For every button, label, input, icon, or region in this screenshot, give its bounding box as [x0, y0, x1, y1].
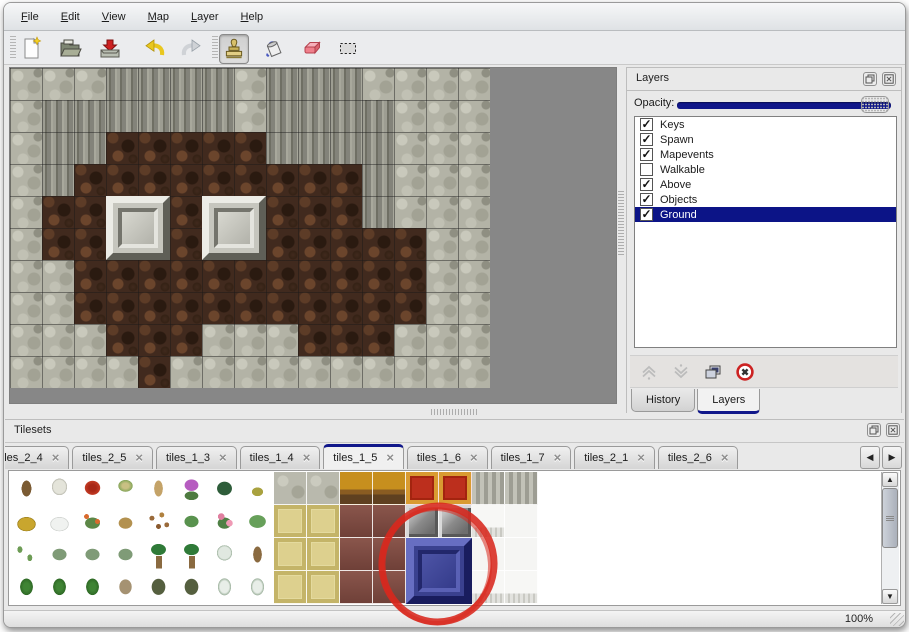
map-tile [170, 68, 202, 100]
map-tile [234, 324, 266, 356]
stone-block-face [214, 208, 254, 248]
layers-panel: Layers Opacity: ✓Keys✓Spawn✓MapeventsWal… [626, 67, 902, 413]
tileset-tile-hay[interactable] [10, 505, 43, 538]
map-tile [362, 324, 394, 356]
map-tile [266, 228, 298, 260]
map-tile [74, 228, 106, 260]
layer-name: Walkable [660, 164, 705, 176]
map-tile [170, 356, 202, 388]
tileset-tab-label: tiles_2_1 [584, 452, 628, 464]
tileset-tile-conifer[interactable] [76, 571, 109, 604]
map-tile [394, 228, 426, 260]
close-panel-button[interactable] [886, 423, 900, 437]
tileset-tile-mat[interactable] [274, 505, 307, 538]
map-tile [458, 228, 490, 260]
layer-visibility-checkbox[interactable]: ✓ [640, 148, 653, 161]
map-tile [42, 164, 74, 196]
map-tile [42, 324, 74, 356]
map-tile [362, 132, 394, 164]
map-tile [458, 260, 490, 292]
map-tile [10, 260, 42, 292]
map-tile [394, 196, 426, 228]
vertical-splitter-handle[interactable] [618, 191, 624, 255]
map-tile [426, 196, 458, 228]
map-tile [170, 292, 202, 324]
save-file-button[interactable] [96, 34, 124, 62]
tileset-tile-palm[interactable] [142, 538, 175, 571]
map-tile [170, 132, 202, 164]
map-tile [394, 68, 426, 100]
tileset-tile-grass[interactable] [241, 472, 274, 505]
map-tile [74, 292, 106, 324]
checkmark-icon: ✓ [641, 209, 651, 219]
opacity-row: Opacity: [627, 91, 901, 115]
undo-button[interactable] [140, 34, 168, 62]
map-canvas[interactable] [10, 68, 490, 388]
map-tile [394, 356, 426, 388]
map-tile [298, 132, 330, 164]
map-tile [74, 356, 106, 388]
layer-row-ground[interactable]: ✓Ground [635, 207, 896, 222]
map-tile [362, 260, 394, 292]
map-tile [106, 164, 138, 196]
layer-visibility-checkbox[interactable]: ✓ [640, 178, 653, 191]
map-tile [362, 292, 394, 324]
tileset-tile-mat[interactable] [307, 505, 340, 538]
tileset-tile-conifer[interactable] [43, 571, 76, 604]
scroll-down-button[interactable]: ▼ [882, 589, 898, 604]
map-tile [74, 196, 106, 228]
layer-name: Spawn [660, 134, 694, 146]
tileset-tile-conifer[interactable] [10, 571, 43, 604]
tab-close-icon[interactable]: × [135, 453, 143, 463]
map-tile [298, 68, 330, 100]
tileset-tile-curtain[interactable] [505, 472, 538, 505]
tab-scroll-right-button[interactable]: ▶ [882, 446, 902, 469]
map-tile [330, 356, 362, 388]
map-tile [74, 164, 106, 196]
tileset-tile-tantrunk[interactable] [142, 472, 175, 505]
tileset-content: ▲ ▼ [8, 470, 901, 606]
tileset-tile-bush[interactable] [43, 538, 76, 571]
tileset-tile-mat[interactable] [307, 571, 340, 604]
tab-close-icon[interactable]: × [386, 453, 394, 463]
map-tile [394, 164, 426, 196]
map-tile [138, 324, 170, 356]
map-tile [106, 68, 138, 100]
map-tile [10, 68, 42, 100]
tileset-tile-lily2[interactable] [241, 505, 274, 538]
opacity-label: Opacity: [634, 97, 674, 109]
tileset-tab-tiles_1_5[interactable]: tiles_1_5× [323, 444, 404, 469]
map-tile [298, 196, 330, 228]
map-tile [202, 260, 234, 292]
map-tile [138, 132, 170, 164]
toolbar-drag-handle[interactable] [212, 36, 218, 60]
select-tool-icon [336, 36, 360, 60]
map-tile [106, 356, 138, 388]
tileset-tile-leaves[interactable] [142, 505, 175, 538]
stone-block-face [118, 208, 158, 248]
map-tile [10, 228, 42, 260]
tileset-tile-fern[interactable] [208, 472, 241, 505]
map-tile [426, 324, 458, 356]
tileset-tile-snowtree[interactable] [208, 538, 241, 571]
map-tile [330, 68, 362, 100]
checkmark-icon: ✓ [641, 134, 651, 144]
tileset-tile-darktree[interactable] [175, 571, 208, 604]
map-tile [266, 292, 298, 324]
map-tile [202, 100, 234, 132]
tileset-tile-frame[interactable] [439, 505, 472, 538]
map-tile [298, 164, 330, 196]
layer-row-keys[interactable]: ✓Keys [635, 117, 896, 132]
move-layer-down-button[interactable] [668, 359, 693, 384]
layer-name: Objects [660, 194, 697, 206]
map-tile [234, 132, 266, 164]
close-icon [884, 74, 894, 84]
layers-panel-title: Layers [636, 72, 669, 84]
tileset-tab-tiles_1_7[interactable]: tiles_1_7× [491, 446, 572, 469]
checkmark-icon: ✓ [641, 194, 651, 204]
tileset-tile-whitefringe[interactable] [472, 505, 505, 538]
map-tile [426, 164, 458, 196]
map-tile [202, 356, 234, 388]
tileset-tab-tiles_1_4[interactable]: tiles_1_4× [240, 446, 321, 469]
map-tile [138, 260, 170, 292]
map-tile [106, 260, 138, 292]
tilesets-panel-titlebar: Tilesets [5, 420, 904, 443]
tileset-tile-maroon[interactable] [340, 571, 373, 604]
tileset-tile-snowfir[interactable] [208, 571, 241, 604]
tab-close-icon[interactable]: × [637, 453, 645, 463]
map-tile [266, 356, 298, 388]
map-tile [234, 164, 266, 196]
tileset-tile-purplebush[interactable] [175, 472, 208, 505]
map-tile [362, 68, 394, 100]
tileset-tile-maroon[interactable] [373, 505, 406, 538]
map-tile [106, 100, 138, 132]
tileset-tile-palm[interactable] [175, 538, 208, 571]
open-file-icon [58, 36, 82, 60]
tileset-tile-table[interactable] [340, 472, 373, 505]
map-tile [330, 132, 362, 164]
map-tile [138, 164, 170, 196]
tileset-tile-white[interactable] [505, 538, 538, 571]
tileset-tile-carpet[interactable] [439, 472, 472, 505]
map-tile [330, 260, 362, 292]
map-tile [10, 100, 42, 132]
map-tile [42, 100, 74, 132]
map-tile [362, 356, 394, 388]
tileset-tab-label: tiles_1_5 [333, 452, 377, 464]
map-tile [74, 324, 106, 356]
map-tile [10, 132, 42, 164]
tileset-tile-cobble[interactable] [274, 472, 307, 505]
map-tile [266, 68, 298, 100]
tileset-tile-frame[interactable] [406, 505, 439, 538]
layer-name: Ground [660, 209, 697, 221]
eraser-tool-icon [300, 36, 324, 60]
map-tile [138, 356, 170, 388]
tileset-tab-tiles_2_6[interactable]: tiles_2_6× [658, 446, 739, 469]
menu-item-help[interactable]: Help [230, 3, 275, 30]
tileset-tile-mat[interactable] [274, 571, 307, 604]
tileset-tab-label: tiles_2_5 [82, 452, 126, 464]
map-tile [170, 100, 202, 132]
layer-visibility-checkbox[interactable]: ✓ [640, 118, 653, 131]
move-layer-up-icon [639, 362, 659, 382]
map-tile [330, 228, 362, 260]
layer-row-objects[interactable]: ✓Objects [635, 192, 896, 207]
map-tile [330, 196, 362, 228]
menu-item-file[interactable]: File [10, 3, 50, 30]
map-tile [42, 260, 74, 292]
tileset-tile-mat[interactable] [274, 538, 307, 571]
tab-close-icon[interactable]: × [303, 453, 311, 463]
menu-bar: FileEditViewMapLayerHelp [4, 3, 905, 31]
float-icon [869, 425, 879, 435]
zoom-level: 100% [845, 613, 873, 625]
down-arrow-icon: ▼ [886, 592, 894, 601]
tileset-tile-sprouts[interactable] [10, 538, 43, 571]
menu-item-map[interactable]: Map [137, 3, 180, 30]
stamp-tool-icon [222, 37, 246, 61]
new-file-icon [20, 36, 44, 60]
open-file-button[interactable] [56, 34, 84, 62]
float-panel-button[interactable] [867, 423, 881, 437]
tileset-tab-bar: 3×tiles_2_4×tiles_2_5×tiles_1_3×tiles_1_… [5, 443, 860, 469]
checkmark-icon: ✓ [641, 119, 651, 129]
tileset-tile-maroon[interactable] [373, 571, 406, 604]
tileset-tile-lily[interactable] [175, 505, 208, 538]
close-icon [888, 425, 898, 435]
tileset-tab-label: tiles_1_4 [250, 452, 294, 464]
tileset-tile-stump[interactable] [109, 472, 142, 505]
map-tile [234, 356, 266, 388]
layer-visibility-checkbox[interactable]: ✓ [640, 193, 653, 206]
map-tile [234, 68, 266, 100]
layer-row-spawn[interactable]: ✓Spawn [635, 132, 896, 147]
tileset-tab-tiles_2_5[interactable]: tiles_2_5× [72, 446, 153, 469]
tileset-tile-trunk[interactable] [10, 472, 43, 505]
map-tile [426, 356, 458, 388]
map-tile [394, 324, 426, 356]
map-tile [42, 132, 74, 164]
scrollbar-thumb[interactable] [882, 488, 898, 548]
layer-row-mapevents[interactable]: ✓Mapevents [635, 147, 896, 162]
up-arrow-icon: ▲ [886, 475, 894, 484]
map-tile [298, 100, 330, 132]
tab-close-icon[interactable]: × [219, 453, 227, 463]
map-tile [202, 324, 234, 356]
map-tile [42, 292, 74, 324]
undo-icon [142, 36, 166, 60]
redo-button[interactable] [178, 34, 206, 62]
opacity-slider-handle[interactable] [861, 96, 889, 113]
tileset-tab-tiles_2_4[interactable]: tiles_2_4× [5, 446, 69, 469]
tileset-tile-maroon[interactable] [340, 505, 373, 538]
duplicate-layer-button[interactable] [700, 359, 725, 384]
tileset-tile-drygrass[interactable] [109, 505, 142, 538]
delete-layer-icon [735, 362, 755, 382]
map-tile [362, 228, 394, 260]
tileset-tile-mat[interactable] [307, 538, 340, 571]
opacity-slider-track[interactable] [677, 102, 891, 109]
scroll-up-button[interactable]: ▲ [882, 472, 898, 487]
tileset-tile-darktree[interactable] [142, 571, 175, 604]
layer-buttons-row [630, 355, 898, 388]
layer-list: ✓Keys✓Spawn✓MapeventsWalkable✓Above✓Obje… [634, 116, 897, 348]
layer-visibility-checkbox[interactable]: ✓ [640, 208, 653, 221]
right-arrow-icon: ▶ [889, 452, 896, 463]
tileset-tab-tiles_1_6[interactable]: tiles_1_6× [407, 446, 488, 469]
panel-tab-layers[interactable]: Layers [697, 389, 760, 414]
fill-tool-icon [262, 36, 286, 60]
tileset-tile-deadtree[interactable] [43, 472, 76, 505]
select-tool-button[interactable] [334, 34, 362, 62]
status-bar: 100% [4, 610, 905, 627]
menu-item-view[interactable]: View [91, 3, 137, 30]
duplicate-layer-icon [703, 362, 723, 382]
tileset-tab-tiles_2_1[interactable]: tiles_2_1× [574, 446, 655, 469]
tileset-tile-cobble[interactable] [307, 472, 340, 505]
tab-close-icon[interactable]: × [721, 453, 729, 463]
map-tile [202, 164, 234, 196]
tileset-tile-bush[interactable] [109, 538, 142, 571]
map-tile [458, 356, 490, 388]
selected-blue-tile[interactable] [406, 538, 472, 604]
tileset-tile-orangeflower[interactable] [76, 505, 109, 538]
map-tile [458, 196, 490, 228]
checkmark-icon: ✓ [641, 179, 651, 189]
map-tile [42, 228, 74, 260]
eraser-tool-button[interactable] [298, 34, 326, 62]
map-tile [394, 292, 426, 324]
resize-grip[interactable] [890, 613, 904, 626]
left-arrow-icon: ◀ [867, 452, 874, 463]
layer-visibility-checkbox[interactable] [640, 163, 653, 176]
map-tile [10, 324, 42, 356]
horizontal-splitter-handle[interactable] [431, 409, 477, 415]
layer-name: Mapevents [660, 149, 714, 161]
layer-visibility-checkbox[interactable]: ✓ [640, 133, 653, 146]
map-tile [106, 132, 138, 164]
map-tile [170, 260, 202, 292]
tileset-tile-redflower[interactable] [76, 472, 109, 505]
map-tile [330, 292, 362, 324]
map-canvas-frame [9, 67, 617, 404]
map-tile [106, 292, 138, 324]
map-tile [362, 196, 394, 228]
map-tile [10, 196, 42, 228]
map-tile [170, 324, 202, 356]
map-tile [234, 292, 266, 324]
map-tile [170, 164, 202, 196]
close-panel-button[interactable] [882, 72, 896, 86]
panel-tab-bar: HistoryLayers [631, 389, 762, 413]
tileset-tile-snowmound[interactable] [43, 505, 76, 538]
tab-scroll-left-button[interactable]: ◀ [860, 446, 880, 469]
map-tile [426, 292, 458, 324]
map-tile [426, 132, 458, 164]
map-tile [426, 68, 458, 100]
map-tile [10, 164, 42, 196]
new-file-button[interactable] [18, 34, 46, 62]
layer-row-walkable[interactable]: Walkable [635, 162, 896, 177]
tileset-tile-palmtrunk[interactable] [241, 538, 274, 571]
map-tile [266, 196, 298, 228]
fill-tool-button[interactable] [260, 34, 288, 62]
map-tile [202, 132, 234, 164]
tileset-tile-maroon[interactable] [340, 538, 373, 571]
map-tile [234, 260, 266, 292]
tileset-tab-tiles_1_3[interactable]: tiles_1_3× [156, 446, 237, 469]
map-tile [234, 100, 266, 132]
tileset-tile-carpet[interactable] [406, 472, 439, 505]
tileset-tile-pinkflower[interactable] [208, 505, 241, 538]
save-file-icon [98, 36, 122, 60]
menu-item-layer[interactable]: Layer [180, 3, 230, 30]
map-tile [138, 68, 170, 100]
map-tile [298, 292, 330, 324]
tileset-tile-maroon[interactable] [373, 538, 406, 571]
map-tile [42, 356, 74, 388]
map-tile [458, 164, 490, 196]
tileset-tile-whitefringe[interactable] [472, 571, 505, 604]
tileset-tile-bush[interactable] [76, 538, 109, 571]
map-tile [330, 324, 362, 356]
move-layer-down-icon [671, 362, 691, 382]
delete-layer-button[interactable] [732, 359, 757, 384]
stamp-tool-button[interactable] [219, 34, 249, 64]
map-tile [362, 100, 394, 132]
toolbar-drag-handle[interactable] [10, 36, 16, 60]
blue-tile-inner [418, 550, 460, 592]
tab-close-icon[interactable]: × [470, 453, 478, 463]
tileset-tile-gnarled[interactable] [109, 571, 142, 604]
menu-item-edit[interactable]: Edit [50, 3, 91, 30]
float-panel-button[interactable] [863, 72, 877, 86]
tileset-tab-label: tiles_1_7 [501, 452, 545, 464]
toolbar [4, 31, 905, 65]
map-tile [426, 100, 458, 132]
tileset-tile-whitefringe[interactable] [505, 571, 538, 604]
map-tile [458, 292, 490, 324]
layer-name: Above [660, 179, 691, 191]
checkmark-icon: ✓ [641, 149, 651, 159]
map-tile [394, 260, 426, 292]
tileset-tile-snowfir[interactable] [241, 571, 274, 604]
tileset-tile-white[interactable] [472, 538, 505, 571]
map-tile [138, 100, 170, 132]
tileset-tile-table[interactable] [373, 472, 406, 505]
tileset-tab-label: tiles_2_4 [5, 452, 43, 464]
layer-row-above[interactable]: ✓Above [635, 177, 896, 192]
panel-tab-history[interactable]: History [631, 389, 695, 412]
map-tile [394, 132, 426, 164]
tab-close-icon[interactable]: × [554, 453, 562, 463]
move-layer-up-button[interactable] [636, 359, 661, 384]
tileset-tile-curtain[interactable] [472, 472, 505, 505]
tab-close-icon[interactable]: × [52, 453, 60, 463]
tileset-tile-white[interactable] [505, 505, 538, 538]
map-tile [362, 164, 394, 196]
map-tile [330, 100, 362, 132]
map-tile [42, 196, 74, 228]
map-tile [74, 132, 106, 164]
map-tile [106, 324, 138, 356]
